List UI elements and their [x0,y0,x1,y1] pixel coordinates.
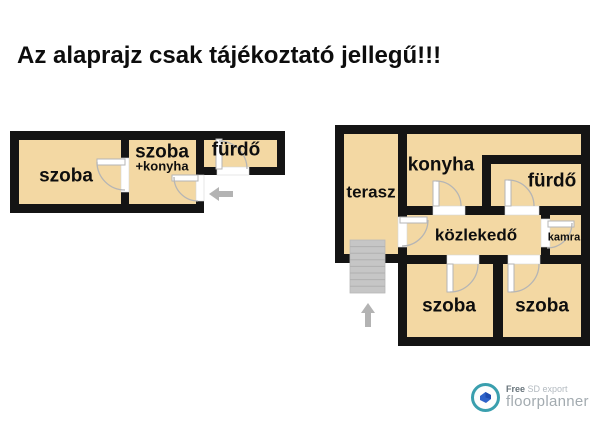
door-leaf [548,221,574,227]
floorplanner-logo: Free SD export floorplanner [471,383,589,412]
room-label-kamra: kamra [548,233,580,244]
isometric-room-icon [477,389,494,406]
door-leaf [447,264,453,292]
entrance-arrow-left-icon [209,187,233,201]
floorplans-drawing [0,0,600,424]
room-label-konyha: konyha [408,156,475,175]
room-label-furdo: fürdő [212,141,261,160]
right-room-konyha-extension [482,134,581,155]
door-leaf [400,217,427,223]
door-leaf [97,159,125,165]
room-label-szoba-left: szoba [422,297,476,316]
entrance-stairs [350,240,385,293]
floorplanner-logo-icon [471,383,500,412]
room-label-plus-konyha: +konyha [135,160,188,173]
logo-name-label: floorplanner [506,394,589,410]
door-leaf [505,180,511,206]
room-label-terasz: terasz [346,184,395,201]
door-leaf [172,175,198,181]
room-label-furdo-right: fürdő [528,172,577,191]
room-label-kozlekedo: közlekedő [435,227,517,244]
door-leaf [508,264,514,292]
door-leaf [433,181,439,206]
room-label-szoba-right: szoba [515,297,569,316]
floorplanner-logo-text: Free SD export floorplanner [506,385,589,410]
entrance-arrow-up-icon [361,303,375,327]
room-label-szoba: szoba [39,167,93,186]
